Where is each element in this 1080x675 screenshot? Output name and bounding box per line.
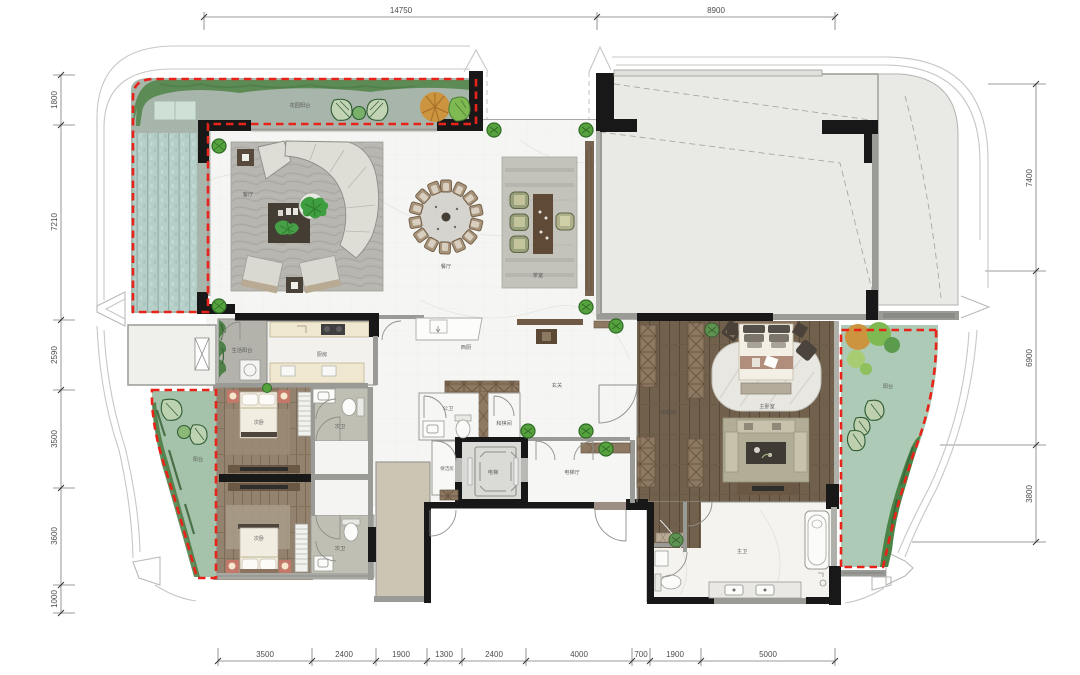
svg-text:6900: 6900 (1025, 349, 1034, 367)
svg-text:茶室: 茶室 (533, 271, 543, 279)
svg-text:2400: 2400 (485, 650, 503, 659)
svg-text:14750: 14750 (390, 6, 413, 15)
svg-text:3800: 3800 (1025, 485, 1034, 503)
svg-text:1900: 1900 (666, 650, 684, 659)
svg-text:4000: 4000 (570, 650, 588, 659)
svg-text:餐厅: 餐厅 (441, 262, 451, 270)
svg-text:西厨: 西厨 (461, 344, 471, 351)
svg-text:客厅: 客厅 (243, 190, 253, 198)
svg-text:700: 700 (634, 650, 648, 659)
svg-text:5000: 5000 (759, 650, 777, 659)
svg-text:保洁房: 保洁房 (440, 465, 454, 472)
svg-text:和棋间: 和棋间 (496, 419, 512, 427)
svg-text:8900: 8900 (707, 6, 725, 15)
svg-text:衣帽间: 衣帽间 (660, 408, 676, 416)
svg-text:主卫: 主卫 (737, 547, 747, 555)
svg-text:1800: 1800 (50, 91, 59, 109)
svg-text:公卫: 公卫 (443, 405, 453, 412)
svg-text:2590: 2590 (50, 346, 59, 364)
svg-text:电梯: 电梯 (488, 468, 498, 476)
svg-text:1900: 1900 (392, 650, 410, 659)
svg-text:次卫: 次卫 (335, 544, 345, 552)
svg-text:3500: 3500 (50, 430, 59, 448)
svg-text:1000: 1000 (50, 590, 59, 608)
svg-text:生活阳台: 生活阳台 (232, 346, 253, 354)
svg-text:电梯厅: 电梯厅 (564, 468, 580, 476)
svg-text:阳台: 阳台 (193, 455, 203, 463)
svg-text:花园阳台: 花园阳台 (290, 101, 311, 109)
svg-text:玄关: 玄关 (552, 381, 562, 389)
svg-text:厨房: 厨房 (317, 350, 327, 358)
svg-text:主卧室: 主卧室 (759, 402, 775, 410)
svg-text:次卧: 次卧 (254, 534, 264, 542)
svg-text:次卧: 次卧 (254, 418, 264, 426)
svg-text:7400: 7400 (1025, 169, 1034, 187)
svg-text:次卫: 次卫 (335, 422, 345, 430)
svg-text:阳台: 阳台 (883, 382, 893, 390)
svg-text:2400: 2400 (335, 650, 353, 659)
svg-text:3500: 3500 (256, 650, 274, 659)
svg-text:3600: 3600 (50, 527, 59, 545)
svg-text:1300: 1300 (435, 650, 453, 659)
svg-text:7210: 7210 (50, 213, 59, 231)
